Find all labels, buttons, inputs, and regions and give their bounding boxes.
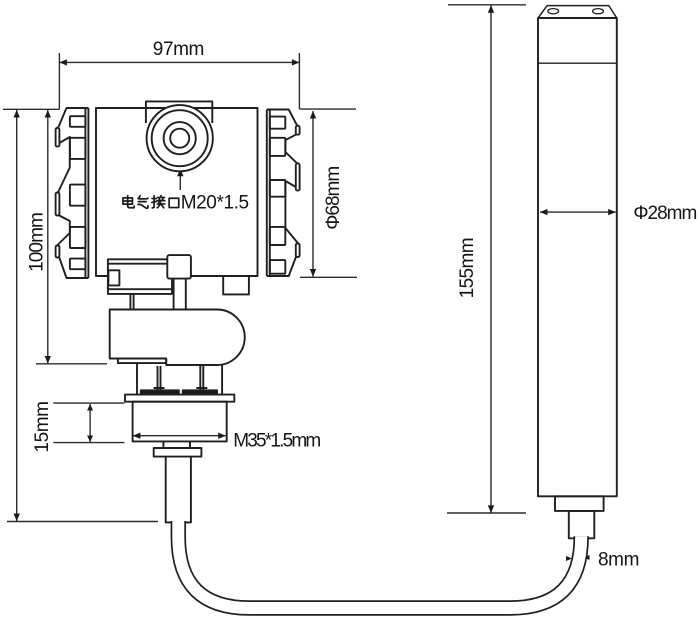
svg-text:155mm: 155mm [457, 238, 478, 298]
svg-text:Φ68mm: Φ68mm [323, 167, 344, 230]
svg-text:8mm: 8mm [598, 550, 639, 571]
svg-text:100mm: 100mm [27, 213, 48, 272]
svg-text:M35*1.5mm: M35*1.5mm [233, 431, 320, 452]
svg-text:15mm: 15mm [32, 401, 53, 452]
svg-text:Φ28mm: Φ28mm [633, 203, 696, 224]
svg-text:97mm: 97mm [153, 39, 204, 60]
svg-text:M20*1.5: M20*1.5 [181, 193, 249, 214]
